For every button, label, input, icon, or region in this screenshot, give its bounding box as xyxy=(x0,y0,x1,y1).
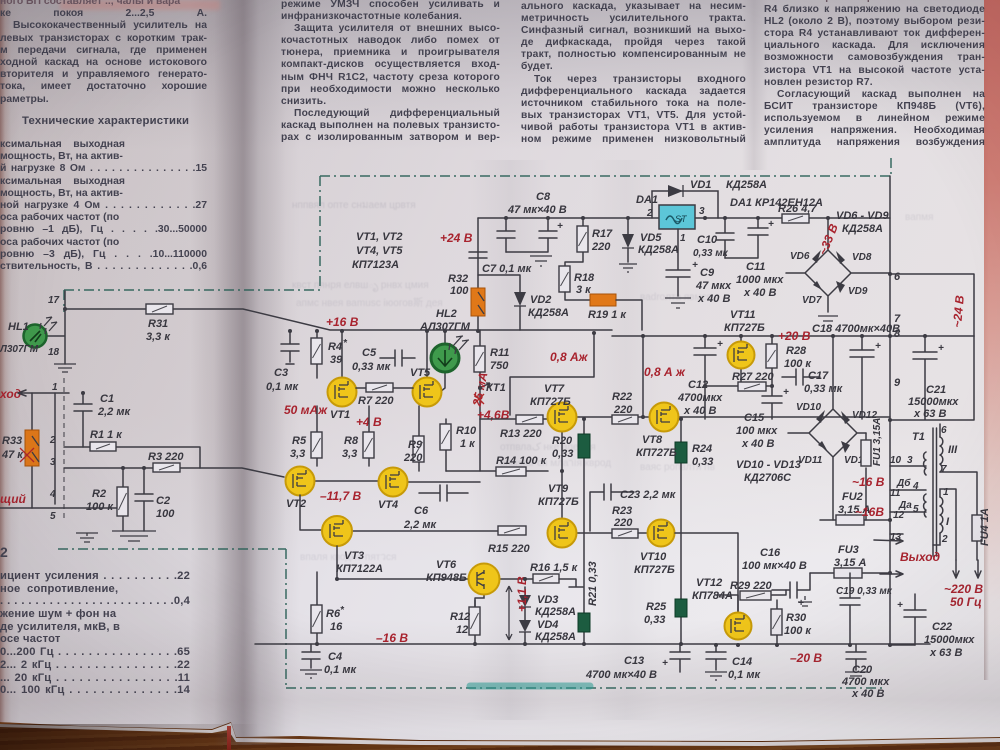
svg-text:Выход: Выход xyxy=(900,550,940,564)
svg-text:VT3: VT3 xyxy=(344,550,364,562)
svg-text:3,3: 3,3 xyxy=(342,448,357,460)
svg-text:R18: R18 xyxy=(574,272,595,284)
svg-text:C22: C22 xyxy=(932,621,952,633)
svg-text:С4: С4 xyxy=(328,651,342,663)
svg-text:220: 220 xyxy=(591,241,611,253)
svg-text:1: 1 xyxy=(943,487,949,498)
svg-text:*: * xyxy=(343,338,348,349)
svg-text:С2: С2 xyxy=(156,495,170,507)
svg-text:R16 1,5 к: R16 1,5 к xyxy=(530,562,579,574)
svg-text:47 мкх: 47 мкх xyxy=(695,280,732,292)
svg-text:5: 5 xyxy=(913,504,919,515)
svg-text:R3 220: R3 220 xyxy=(148,451,184,463)
svg-text:VD6 - VD9: VD6 - VD9 xyxy=(836,210,889,222)
svg-text:КД258А: КД258А xyxy=(638,244,679,256)
svg-text:VD10: VD10 xyxy=(796,402,821,413)
svg-text:R26 4,7: R26 4,7 xyxy=(778,203,817,215)
svg-text:КП727Б: КП727Б xyxy=(634,564,675,576)
svg-text:апмс нвея ваmusс іюогов斯 дея: апмс нвея ваmusс іюогов斯 дея xyxy=(296,296,443,309)
svg-text:100 к: 100 к xyxy=(86,501,114,513)
svg-text:750: 750 xyxy=(490,360,509,372)
svg-text:VT4, VT5: VT4, VT5 xyxy=(356,245,403,257)
svg-text:9: 9 xyxy=(894,377,901,389)
svg-text:0,33 мк: 0,33 мк xyxy=(804,383,844,395)
svg-text:100 мк×40 В: 100 мк×40 В xyxy=(742,560,807,572)
svg-text:4: 4 xyxy=(912,481,919,492)
svg-text:R1 1 к: R1 1 к xyxy=(90,429,123,441)
svg-text:0,33 мк: 0,33 мк xyxy=(352,361,392,373)
svg-text:+: + xyxy=(938,343,944,354)
svg-text:VT4: VT4 xyxy=(378,499,398,511)
svg-text:3,3 к: 3,3 к xyxy=(146,331,171,343)
svg-text:КД258А: КД258А xyxy=(535,631,576,643)
svg-text:220: 220 xyxy=(613,517,633,529)
svg-text:VT6: VT6 xyxy=(436,559,457,571)
svg-text:R23: R23 xyxy=(612,505,632,517)
svg-text:0,33: 0,33 xyxy=(552,448,573,460)
svg-text:11: 11 xyxy=(890,488,901,499)
svg-text:х 63 В: х 63 В xyxy=(913,408,946,420)
svg-text:квст пянря елвшృ рнвх цмия: квст пянря елвшృ рнвх цмия xyxy=(292,280,429,292)
svg-text:VD6: VD6 xyxy=(790,251,810,262)
svg-text:1: 1 xyxy=(680,233,686,244)
svg-text:R8: R8 xyxy=(344,435,359,447)
svg-text:–11,7 В: –11,7 В xyxy=(320,489,361,503)
svg-text:R5: R5 xyxy=(292,435,307,447)
svg-text:FU1 3,15А: FU1 3,15А xyxy=(872,418,883,466)
svg-text:R24: R24 xyxy=(692,443,712,455)
svg-text:R19 1 к: R19 1 к xyxy=(588,309,627,321)
svg-text:C10: C10 xyxy=(697,234,718,246)
svg-text:VT7: VT7 xyxy=(544,383,565,395)
svg-text:~16 В: ~16 В xyxy=(852,475,885,489)
svg-text:С7 0,1 мк: С7 0,1 мк xyxy=(482,263,533,275)
svg-text:3: 3 xyxy=(699,206,705,217)
svg-text:R30: R30 xyxy=(786,612,807,624)
svg-text:2,2 мк: 2,2 мк xyxy=(97,406,131,418)
svg-text:0,33 мк: 0,33 мк xyxy=(693,248,729,259)
svg-text:VT11: VT11 xyxy=(730,309,755,321)
svg-text:+: + xyxy=(662,658,668,669)
svg-text:КП727Б: КП727Б xyxy=(538,496,579,508)
svg-text:16: 16 xyxy=(330,621,343,633)
svg-text:1: 1 xyxy=(52,382,58,393)
svg-text:R29 220: R29 220 xyxy=(730,580,772,592)
svg-text:47 к: 47 к xyxy=(1,449,24,461)
svg-text:100 к: 100 к xyxy=(784,625,812,637)
svg-text:+4,6В: +4,6В xyxy=(477,408,510,422)
svg-text:ход: ход xyxy=(0,387,21,401)
svg-text:+24 В: +24 В xyxy=(440,231,473,245)
svg-text:VT1, VT2: VT1, VT2 xyxy=(356,231,402,243)
svg-text:С3: С3 xyxy=(274,367,288,379)
svg-text:R27 220: R27 220 xyxy=(732,371,774,383)
svg-text:100: 100 xyxy=(156,508,175,520)
svg-text:КД258А: КД258А xyxy=(842,223,883,235)
svg-text:щий: щий xyxy=(0,492,27,506)
svg-text:R7 220: R7 220 xyxy=(358,395,394,407)
svg-text:2: 2 xyxy=(49,435,56,446)
svg-text:нппвял опте снมаем црвтя: нппвял опте снมаем црвтя xyxy=(292,200,416,211)
svg-text:0,1 мк: 0,1 мк xyxy=(728,669,761,681)
svg-text:R4: R4 xyxy=(328,341,342,353)
svg-text:ST: ST xyxy=(675,214,688,224)
svg-text:х 63 В: х 63 В xyxy=(929,647,962,659)
svg-text:КД258А: КД258А xyxy=(528,307,569,319)
svg-text:VD2: VD2 xyxy=(530,294,551,306)
svg-text:С19 0,33 мк: С19 0,33 мк xyxy=(836,586,893,597)
svg-text:х 40 В: х 40 В xyxy=(743,287,776,299)
svg-text:КП7123А: КП7123А xyxy=(352,259,399,271)
svg-text:17: 17 xyxy=(48,295,60,306)
svg-text:2,2 мк: 2,2 мк xyxy=(403,519,437,531)
svg-text:4: 4 xyxy=(49,489,56,500)
svg-text:С13: С13 xyxy=(624,655,644,667)
svg-text:КД258А: КД258А xyxy=(535,606,576,618)
svg-text:С14: С14 xyxy=(732,656,752,668)
svg-text:C16: C16 xyxy=(760,547,781,559)
svg-text:С18 4700мк×40В: С18 4700мк×40В xyxy=(812,323,900,335)
svg-text:Т1: Т1 xyxy=(912,431,925,443)
svg-text:4700мкх: 4700мкх xyxy=(677,392,723,404)
svg-text:+: + xyxy=(783,387,789,398)
svg-text:С9: С9 xyxy=(700,267,715,279)
svg-text:*: * xyxy=(340,605,345,616)
svg-text:6: 6 xyxy=(894,271,901,283)
svg-text:R20: R20 xyxy=(552,435,573,447)
svg-text:+: + xyxy=(717,339,723,350)
svg-text:–20 В: –20 В xyxy=(790,651,822,665)
svg-text:R2: R2 xyxy=(92,488,106,500)
svg-text:100 к: 100 к xyxy=(784,358,812,370)
svg-text:FU3: FU3 xyxy=(838,544,859,556)
svg-text:7: 7 xyxy=(941,464,947,475)
svg-text:VT5: VT5 xyxy=(410,367,431,379)
svg-text:0,33: 0,33 xyxy=(692,456,713,468)
svg-text:VT9: VT9 xyxy=(548,483,569,495)
svg-text:VT8: VT8 xyxy=(642,434,663,446)
svg-text:КП948Б: КП948Б xyxy=(426,572,467,584)
svg-text:+: + xyxy=(692,260,698,271)
svg-text:1 к: 1 к xyxy=(460,438,476,450)
svg-text:R22: R22 xyxy=(612,391,632,403)
svg-text:VT1: VT1 xyxy=(330,409,350,421)
svg-text:~33 В: ~33 В xyxy=(816,222,841,258)
svg-text:С6: С6 xyxy=(414,505,429,517)
svg-text:КД258А: КД258А xyxy=(726,179,767,191)
svg-text:C15: C15 xyxy=(744,412,765,424)
svg-text:С5: С5 xyxy=(362,347,377,359)
svg-text:12: 12 xyxy=(893,510,905,521)
svg-text:R28: R28 xyxy=(786,345,807,357)
svg-text:47 мк×40 В: 47 мк×40 В xyxy=(507,204,567,216)
svg-text:HL2: HL2 xyxy=(436,308,457,320)
svg-text:DA1: DA1 xyxy=(636,194,658,206)
svg-text:VD4: VD4 xyxy=(537,619,558,631)
svg-text:10: 10 xyxy=(890,455,902,466)
svg-text:R15 220: R15 220 xyxy=(488,543,530,555)
svg-text:2: 2 xyxy=(646,208,653,219)
svg-text:HL1: HL1 xyxy=(8,321,29,333)
svg-text:0,8 Аж: 0,8 Аж xyxy=(550,350,589,364)
svg-text:Л307ГМ: Л307ГМ xyxy=(0,344,39,355)
svg-text:50 мАж: 50 мАж xyxy=(284,403,328,417)
svg-text:18: 18 xyxy=(48,347,60,358)
svg-text:0,8 А ж: 0,8 А ж xyxy=(644,365,686,379)
svg-text:VD11: VD11 xyxy=(798,455,823,466)
svg-text:12: 12 xyxy=(456,624,468,636)
svg-text:6: 6 xyxy=(941,425,947,436)
svg-text:220: 220 xyxy=(403,452,423,464)
svg-text:0,1 мк: 0,1 мк xyxy=(324,664,357,676)
svg-text:+16 В: +16 В xyxy=(326,315,359,329)
svg-text:R17: R17 xyxy=(592,228,613,240)
svg-text:VD1: VD1 xyxy=(690,179,711,191)
svg-text:0,1 мк: 0,1 мк xyxy=(266,381,299,393)
svg-text:R10: R10 xyxy=(456,425,477,437)
svg-text:VD8: VD8 xyxy=(852,252,872,263)
svg-text:3: 3 xyxy=(50,457,56,468)
svg-text:КП784А: КП784А xyxy=(692,590,733,602)
svg-text:С20: С20 xyxy=(852,664,873,676)
svg-text:2: 2 xyxy=(941,534,948,545)
svg-text:+: + xyxy=(557,221,563,232)
svg-text:100: 100 xyxy=(450,285,469,297)
svg-text:КП727Б: КП727Б xyxy=(724,322,765,334)
svg-text:+: + xyxy=(768,219,774,230)
svg-text:–16 В: –16 В xyxy=(376,631,408,645)
svg-text:~24 В: ~24 В xyxy=(950,294,967,328)
svg-text:3,3: 3,3 xyxy=(290,448,305,460)
svg-text:C17: C17 xyxy=(808,370,829,382)
svg-text:VT2: VT2 xyxy=(286,498,306,510)
svg-text:+20 В: +20 В xyxy=(778,329,811,343)
svg-text:III: III xyxy=(948,444,958,456)
svg-text:~220 В: ~220 В xyxy=(944,582,983,596)
svg-text:х 40 В: х 40 В xyxy=(851,688,884,700)
svg-text:4700 мкх: 4700 мкх xyxy=(841,676,890,688)
svg-text:R21 0,33: R21 0,33 xyxy=(587,561,599,606)
svg-text:15000мкх: 15000мкх xyxy=(924,634,975,646)
svg-text:R12: R12 xyxy=(450,611,470,623)
svg-text:R31: R31 xyxy=(148,318,168,330)
svg-text:КП727Б: КП727Б xyxy=(530,396,571,408)
svg-text:+: + xyxy=(798,598,804,609)
svg-text:х 40 В: х 40 В xyxy=(697,293,730,305)
svg-text:R32: R32 xyxy=(448,273,468,285)
svg-text:VT10: VT10 xyxy=(640,551,667,563)
svg-text:100 мкх: 100 мкх xyxy=(736,425,778,437)
svg-text:39: 39 xyxy=(330,354,343,366)
svg-text:+1,1 В: +1,1 В xyxy=(515,576,529,612)
svg-text:+: + xyxy=(875,341,881,352)
svg-text:R33: R33 xyxy=(2,435,22,447)
svg-text:FU4 1А: FU4 1А xyxy=(979,508,991,546)
svg-text:КТ1: КТ1 xyxy=(486,382,506,394)
svg-text:3: 3 xyxy=(907,455,913,466)
svg-text:15000мкх: 15000мкх xyxy=(908,396,959,408)
svg-text:VD3: VD3 xyxy=(537,594,558,606)
svg-text:4700 мк×40 В: 4700 мк×40 В xyxy=(585,669,657,681)
svg-text:R14 100 к: R14 100 к xyxy=(496,455,548,467)
svg-text:+: + xyxy=(897,600,903,611)
svg-text:VD5: VD5 xyxy=(640,232,662,244)
svg-text:50 Гц: 50 Гц xyxy=(950,595,982,609)
svg-text:вапмя: вапмя xyxy=(905,212,933,223)
svg-text:C11: C11 xyxy=(746,261,765,273)
svg-text:КД2706С: КД2706С xyxy=(744,472,792,484)
svg-text:FU2: FU2 xyxy=(842,491,863,503)
svg-text:220: 220 xyxy=(613,404,633,416)
svg-text:х 40 В: х 40 В xyxy=(741,438,774,450)
svg-text:VD7: VD7 xyxy=(802,295,822,306)
svg-text:~16В: ~16В xyxy=(855,505,884,519)
svg-text:I: I xyxy=(946,516,950,528)
svg-text:1000 мкх: 1000 мкх xyxy=(736,274,784,286)
svg-text:R11: R11 xyxy=(490,347,509,359)
svg-text:КП727Б: КП727Б xyxy=(636,447,677,459)
svg-text:C21: C21 xyxy=(926,384,946,396)
svg-text:С23 2,2 мк: С23 2,2 мк xyxy=(620,489,677,501)
svg-text:х 40 В: х 40 В xyxy=(683,405,716,417)
svg-text:С8: С8 xyxy=(536,191,551,203)
svg-text:3,15 А: 3,15 А xyxy=(834,557,866,569)
svg-text:VT12: VT12 xyxy=(696,577,722,589)
svg-text:R25: R25 xyxy=(646,601,667,613)
svg-text:5: 5 xyxy=(50,511,56,522)
svg-text:VD10 - VD13: VD10 - VD13 xyxy=(736,459,801,471)
svg-text:VD9: VD9 xyxy=(848,286,868,297)
svg-text:КП7122А: КП7122А xyxy=(336,563,383,575)
svg-text:R6: R6 xyxy=(326,608,341,620)
svg-text:R13 220: R13 220 xyxy=(500,428,542,440)
svg-text:С1: С1 xyxy=(100,393,114,405)
svg-text:0,33: 0,33 xyxy=(644,614,665,626)
